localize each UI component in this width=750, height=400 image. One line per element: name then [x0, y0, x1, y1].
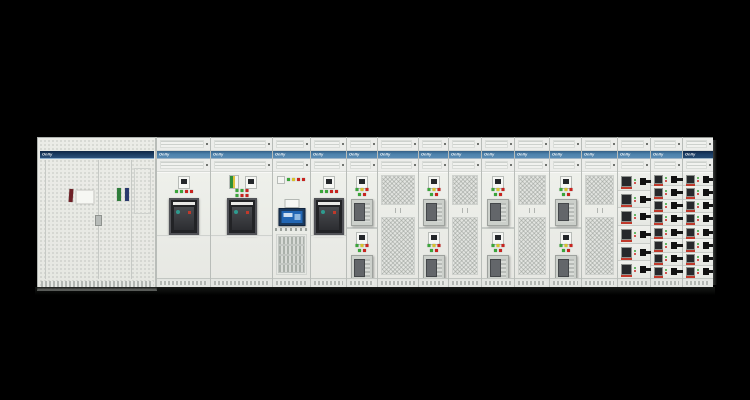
- feeder-drawer: [651, 266, 682, 278]
- drawer-led-green: [665, 256, 667, 258]
- indicator-lights: [430, 193, 438, 196]
- drawer-rotary-handle: [640, 196, 646, 203]
- indicator-lights: [494, 249, 502, 252]
- drawer-leds: [665, 216, 667, 221]
- switchgear-section-10-mesh: Onlly: [515, 137, 549, 287]
- left-distribution-cabinet: Onlly: [37, 137, 157, 291]
- drawer-leds: [697, 256, 699, 261]
- drawer-meter-display: [621, 264, 632, 275]
- feeder-drawer: [683, 200, 713, 213]
- drawer-led-red: [697, 219, 699, 221]
- vent-grille-mid: [211, 159, 272, 172]
- indicator-lights: [427, 188, 440, 191]
- drawer-meter-display: [686, 267, 695, 276]
- drawer-rotary-handle: [703, 202, 709, 209]
- switchgear-section-6-mesh: Onlly: [378, 137, 418, 287]
- indicator-light-yellow: [564, 244, 567, 247]
- switchgear-section-11-mcc2: Onlly: [550, 137, 581, 287]
- drawer-rotary-handle: [640, 249, 646, 256]
- drawer-led-red: [634, 270, 636, 272]
- drawer-led-green: [697, 256, 699, 258]
- equipment-door: [651, 172, 682, 278]
- control-module: [284, 199, 299, 208]
- equipment-door: [683, 172, 713, 278]
- feeder-drawer: [683, 253, 713, 266]
- drawer-rotary-handle: [703, 189, 709, 196]
- brand-logo: Onlly: [421, 153, 431, 157]
- drawer-led-green: [697, 190, 699, 192]
- feeder-drawer: [651, 253, 682, 266]
- drawer-led-green: [665, 177, 667, 179]
- drawer-rotary-handle: [703, 255, 709, 262]
- drawer-meter-display: [686, 214, 695, 223]
- door-label-navy: [125, 188, 129, 201]
- busbar-tapoff: [278, 236, 305, 245]
- drawer-rotary-handle: [640, 231, 646, 238]
- indicator-lights: [494, 193, 502, 196]
- indicator-light-green: [430, 249, 433, 252]
- brand-logo: Onlly: [517, 153, 527, 157]
- base-plinth: [582, 278, 617, 287]
- switchgear-section-1-acb: Onlly: [157, 137, 210, 287]
- drawer-led-red: [634, 182, 636, 184]
- indicator-light-green: [325, 190, 328, 193]
- drawer-led-green: [665, 269, 667, 271]
- switchgear-section-4-acb: Onlly: [311, 137, 346, 287]
- vent-grille-top: [419, 137, 448, 151]
- indicator-light-red: [437, 188, 440, 191]
- door-label-area: [381, 206, 415, 215]
- drawer-leds: [665, 230, 667, 235]
- indicator-light-green: [358, 193, 361, 196]
- door-split-line: [157, 235, 210, 237]
- drawer-rotary-handle: [671, 229, 677, 236]
- vent-grille-mid: [618, 159, 650, 172]
- base-plinth: [515, 278, 549, 287]
- vent-grille-top: [347, 137, 377, 151]
- indicator-lights: [358, 193, 366, 196]
- drawer-led-green: [634, 197, 636, 199]
- base-plinth: [347, 278, 377, 287]
- vent-grille-mid: [683, 159, 713, 172]
- switchgear-section-5-mcc2: Onlly: [347, 137, 377, 287]
- indicator-light-yellow: [292, 178, 295, 181]
- indicator-light-yellow: [361, 244, 364, 247]
- brand-band: Onlly: [651, 151, 682, 159]
- drawer-led-red: [697, 193, 699, 195]
- vent-grille-mid: [550, 159, 581, 172]
- drawer-leds: [665, 243, 667, 248]
- indicator-lights: [320, 190, 338, 193]
- indicator-light-red: [435, 249, 438, 252]
- withdrawable-unit: [423, 199, 445, 226]
- mcc-compartment: [550, 229, 581, 283]
- mesh-door-upper: [585, 175, 614, 205]
- drawer-rotary-handle: [671, 202, 677, 209]
- indicator-light-red: [569, 244, 572, 247]
- door-split-line: [211, 235, 272, 237]
- drawer-led-red: [665, 206, 667, 208]
- brand-logo: Onlly: [349, 153, 359, 157]
- vent-grille-top: [582, 137, 617, 151]
- feeder-drawer: [618, 173, 650, 191]
- drawer-meter-display: [686, 188, 695, 197]
- indicator-light-red: [190, 190, 193, 193]
- equipment-door: [449, 172, 481, 278]
- base-plinth: [419, 278, 448, 287]
- equipment-door: [211, 172, 272, 278]
- drawer-leds: [665, 177, 667, 182]
- drawer-led-red: [697, 233, 699, 235]
- vent-grille-top: [550, 137, 581, 151]
- drawer-led-green: [634, 179, 636, 181]
- indicator-light-red: [499, 249, 502, 252]
- drawer-led-green: [634, 267, 636, 269]
- drawer-led-red: [665, 259, 667, 261]
- drawer-led-red: [665, 219, 667, 221]
- indicator-light-red: [437, 244, 440, 247]
- feeder-drawer: [683, 266, 713, 278]
- status-leds: [287, 178, 305, 181]
- drawer-led-red: [665, 180, 667, 182]
- drawer-leds: [697, 203, 699, 208]
- drawer-leds: [697, 177, 699, 182]
- switchgear-lineup-photo: Onlly OnllyOnllyOnllyOnllyOnllyOnllyOnll…: [0, 0, 750, 400]
- indicator-light-green: [427, 188, 430, 191]
- drawer-meter-display: [654, 175, 663, 184]
- brand-band: Onlly: [211, 151, 272, 159]
- indicator-light-yellow: [564, 188, 567, 191]
- withdrawable-unit: [351, 199, 373, 226]
- drawer-rotary-handle: [703, 229, 709, 236]
- equipment-door: [311, 172, 346, 278]
- drawer-rotary-handle: [671, 255, 677, 262]
- base-plinth: [273, 278, 310, 287]
- switchgear-section-2-acb2: Onlly: [211, 137, 272, 287]
- indicator-light-red: [366, 244, 369, 247]
- breaker-face: [232, 207, 252, 230]
- switchgear-section-14-feeder: Onlly: [651, 137, 682, 287]
- base-plinth: [550, 278, 581, 287]
- vent-grille-top: [482, 137, 514, 151]
- drawer-led-red: [634, 253, 636, 255]
- vent-grille-top: [449, 137, 481, 151]
- meter-display: [323, 176, 335, 189]
- vent-grille-mid: [515, 159, 549, 172]
- drawer-rotary-handle: [703, 242, 709, 249]
- indicator-light-red: [240, 194, 243, 197]
- base-plinth: [311, 278, 346, 287]
- drawer-led-green: [634, 232, 636, 234]
- drawer-meter-display: [621, 211, 632, 222]
- drawer-meter-display: [621, 194, 632, 205]
- indicator-lights: [235, 194, 248, 197]
- busbar-tapoff: [278, 255, 305, 264]
- drawer-meter-display: [654, 228, 663, 237]
- indicator-light-red: [366, 188, 369, 191]
- drawer-leds: [634, 197, 636, 202]
- drawer-led-green: [697, 243, 699, 245]
- withdrawable-unit: [555, 199, 577, 226]
- drawer-meter-display: [621, 176, 632, 187]
- drawer-led-green: [697, 216, 699, 218]
- drawer-meter-display: [654, 254, 663, 263]
- air-circuit-breaker-window: [227, 198, 257, 235]
- feeder-drawer: [618, 261, 650, 278]
- brand-band: Onlly: [582, 151, 617, 159]
- indicator-light-green: [240, 189, 243, 192]
- indicator-light-yellow: [497, 244, 500, 247]
- drawer-rotary-handle: [671, 242, 677, 249]
- equipment-door: [273, 172, 310, 278]
- floor-shadow: [35, 287, 715, 295]
- base-plinth: [449, 278, 481, 287]
- drawer-meter-display: [654, 214, 663, 223]
- drawer-rotary-handle: [640, 266, 646, 273]
- drawer-leds: [697, 190, 699, 195]
- indicator-light-green: [356, 188, 359, 191]
- indicator-lights: [427, 244, 440, 247]
- mcc-compartment: [347, 229, 377, 283]
- drawer-led-green: [665, 230, 667, 232]
- mesh-door-lower: [452, 217, 478, 275]
- drawer-meter-display: [686, 254, 695, 263]
- brand-logo: Onlly: [213, 153, 223, 157]
- drawer-led-green: [634, 214, 636, 216]
- mesh-door-lower: [518, 217, 546, 275]
- vent-grille-top: [515, 137, 549, 151]
- feeder-drawer: [651, 213, 682, 226]
- drawer-meter-display: [621, 247, 632, 258]
- withdrawable-unit: [487, 199, 509, 226]
- equipment-door: [157, 172, 210, 278]
- indicator-light-green: [180, 190, 183, 193]
- mcc-compartment: [482, 229, 514, 283]
- indicator-light-green: [562, 249, 565, 252]
- indicator-lights: [235, 189, 248, 192]
- indicator-light-red: [245, 194, 248, 197]
- equipment-door: [550, 172, 581, 278]
- mesh-door-upper: [381, 175, 415, 205]
- drawer-led-red: [634, 217, 636, 219]
- indicator-light-green: [356, 244, 359, 247]
- base-plinth: [618, 278, 650, 287]
- drawer-led-green: [665, 203, 667, 205]
- drawer-meter-display: [654, 241, 663, 250]
- indicator-light-red: [363, 193, 366, 196]
- drawer-rotary-handle: [703, 215, 709, 222]
- switchgear-section-13-feeder: Onlly: [618, 137, 650, 287]
- vent-grille-top: [378, 137, 418, 151]
- vent-grille-top: [311, 137, 346, 151]
- brand-band: Onlly: [550, 151, 581, 159]
- drawer-meter-display: [654, 201, 663, 210]
- feeder-drawer: [651, 186, 682, 199]
- brand-band: Onlly: [273, 151, 310, 159]
- brand-logo: Onlly: [552, 153, 562, 157]
- air-circuit-breaker-window: [314, 198, 344, 235]
- door-split-line: [311, 235, 346, 237]
- indicator-lights: [562, 249, 570, 252]
- brand-band: Onlly: [347, 151, 377, 159]
- drawer-meter-display: [686, 241, 695, 250]
- base-plinth: [157, 278, 210, 287]
- indicator-light-red: [499, 193, 502, 196]
- indicator-lights: [356, 188, 369, 191]
- vent-grille-mid: [449, 159, 481, 172]
- indicator-light-red: [335, 190, 338, 193]
- drawer-rotary-handle: [640, 213, 646, 220]
- mcc-compartment: [347, 173, 377, 229]
- indicator-lights: [492, 188, 505, 191]
- brand-logo: Onlly: [380, 153, 390, 157]
- door-label-green: [117, 188, 121, 201]
- switchgear-section-9-mcc2: Onlly: [482, 137, 514, 287]
- terminal-strip: [275, 228, 308, 231]
- indicator-light-green: [320, 190, 323, 193]
- drawer-meter-display: [621, 229, 632, 240]
- indicator-light-red: [502, 244, 505, 247]
- drawer-rotary-handle: [703, 268, 709, 275]
- mcc-compartment: [550, 173, 581, 229]
- switchgear-section-7-mcc2: Onlly: [419, 137, 448, 287]
- equipment-door: [419, 172, 448, 278]
- drawer-meter-display: [686, 175, 695, 184]
- door-label-area: [585, 206, 614, 215]
- door-label-area: [518, 206, 546, 215]
- brand-logo: Onlly: [584, 153, 594, 157]
- indicator-light-red: [363, 249, 366, 252]
- breaker-nameplate: [173, 202, 195, 205]
- brand-logo: Onlly: [620, 153, 630, 157]
- base-plinth: [378, 278, 418, 287]
- drawer-leds: [634, 179, 636, 184]
- door-label-white: [76, 190, 94, 204]
- indicator-lights: [492, 244, 505, 247]
- indicator-light-green: [494, 249, 497, 252]
- hmi-screen: [281, 211, 302, 223]
- indicator-light-green: [492, 188, 495, 191]
- brand-band: Onlly: [515, 151, 549, 159]
- vent-grille-mid: [157, 159, 210, 172]
- indicator-light-red: [330, 190, 333, 193]
- brand-band: Onlly: [419, 151, 448, 159]
- switchgear-section-8-mesh: Onlly: [449, 137, 481, 287]
- drawer-rotary-handle: [671, 215, 677, 222]
- brand-band: Onlly: [482, 151, 514, 159]
- indicator-light-yellow: [497, 188, 500, 191]
- drawer-led-red: [634, 235, 636, 237]
- drawer-meter-display: [686, 201, 695, 210]
- switchgear-section-12-mesh: Onlly: [582, 137, 617, 287]
- drawer-leds: [697, 216, 699, 221]
- door-label-area: [452, 206, 478, 215]
- feeder-drawer: [683, 213, 713, 226]
- indicator-light-green: [287, 178, 290, 181]
- equipment-door: [515, 172, 549, 278]
- brand-logo: Onlly: [484, 153, 494, 157]
- brand-logo: Onlly: [451, 153, 461, 157]
- indicator-lights: [559, 188, 572, 191]
- indicator-light-green: [494, 193, 497, 196]
- drawer-led-red: [665, 246, 667, 248]
- drawer-leds: [697, 230, 699, 235]
- indicator-light-red: [569, 188, 572, 191]
- feeder-drawer: [651, 239, 682, 252]
- drawer-leds: [665, 256, 667, 261]
- indicator-light-red: [435, 193, 438, 196]
- indicator-light-red: [302, 178, 305, 181]
- drawer-led-red: [634, 200, 636, 202]
- base-plinth: [683, 278, 713, 287]
- vent-grille-top: [157, 137, 210, 151]
- drawer-leds: [697, 243, 699, 248]
- meter-display: [178, 176, 190, 189]
- breaker-nameplate: [318, 202, 340, 205]
- vent-grille-top: [683, 137, 713, 151]
- drawer-leds: [665, 269, 667, 274]
- feeder-drawer: [651, 173, 682, 186]
- feeder-drawer: [651, 226, 682, 239]
- drawer-leds: [634, 267, 636, 272]
- breaker-face: [319, 207, 339, 230]
- indicator-light-red: [185, 190, 188, 193]
- vent-grille-top: [273, 137, 310, 151]
- indicator-light-green: [175, 190, 178, 193]
- indicator-light-yellow: [361, 188, 364, 191]
- drawer-led-red: [697, 259, 699, 261]
- vent-grille-mid: [651, 159, 682, 172]
- drawer-leds: [634, 250, 636, 255]
- feeder-drawer: [651, 200, 682, 213]
- drawer-led-green: [634, 250, 636, 252]
- drawer-led-red: [697, 180, 699, 182]
- brand-band: Onlly: [449, 151, 481, 159]
- equipment-door: [582, 172, 617, 278]
- aux-indicator-box: [277, 176, 285, 184]
- drawer-led-green: [665, 243, 667, 245]
- vent-grille-mid: [419, 159, 448, 172]
- indicator-light-red: [567, 193, 570, 196]
- mcc-compartment: [419, 173, 448, 229]
- drawer-led-green: [665, 216, 667, 218]
- vent-grille-mid: [311, 159, 346, 172]
- indicator-lights: [358, 249, 366, 252]
- indicator-light-red: [567, 249, 570, 252]
- feeder-drawer: [683, 186, 713, 199]
- drawer-led-red: [665, 233, 667, 235]
- equipment-door: [347, 172, 377, 278]
- drawer-leds: [634, 214, 636, 219]
- drawer-rotary-handle: [640, 178, 646, 185]
- vent-grille-top: [618, 137, 650, 151]
- feeder-drawer: [683, 239, 713, 252]
- feeder-drawer: [618, 191, 650, 209]
- feeder-drawer: [683, 226, 713, 239]
- air-circuit-breaker-window: [169, 198, 199, 235]
- indicator-lights: [559, 244, 572, 247]
- vertical-distribution-riser: [276, 234, 307, 275]
- indicator-light-green: [358, 249, 361, 252]
- drawer-led-red: [697, 206, 699, 208]
- brand-logo: Onlly: [685, 153, 695, 157]
- vent-grille-top: [211, 137, 272, 151]
- indicator-light-green: [430, 193, 433, 196]
- indicator-light-green: [427, 244, 430, 247]
- brand-logo: Onlly: [653, 153, 663, 157]
- busbar-tapoff: [278, 245, 305, 254]
- indicator-lights: [175, 190, 193, 193]
